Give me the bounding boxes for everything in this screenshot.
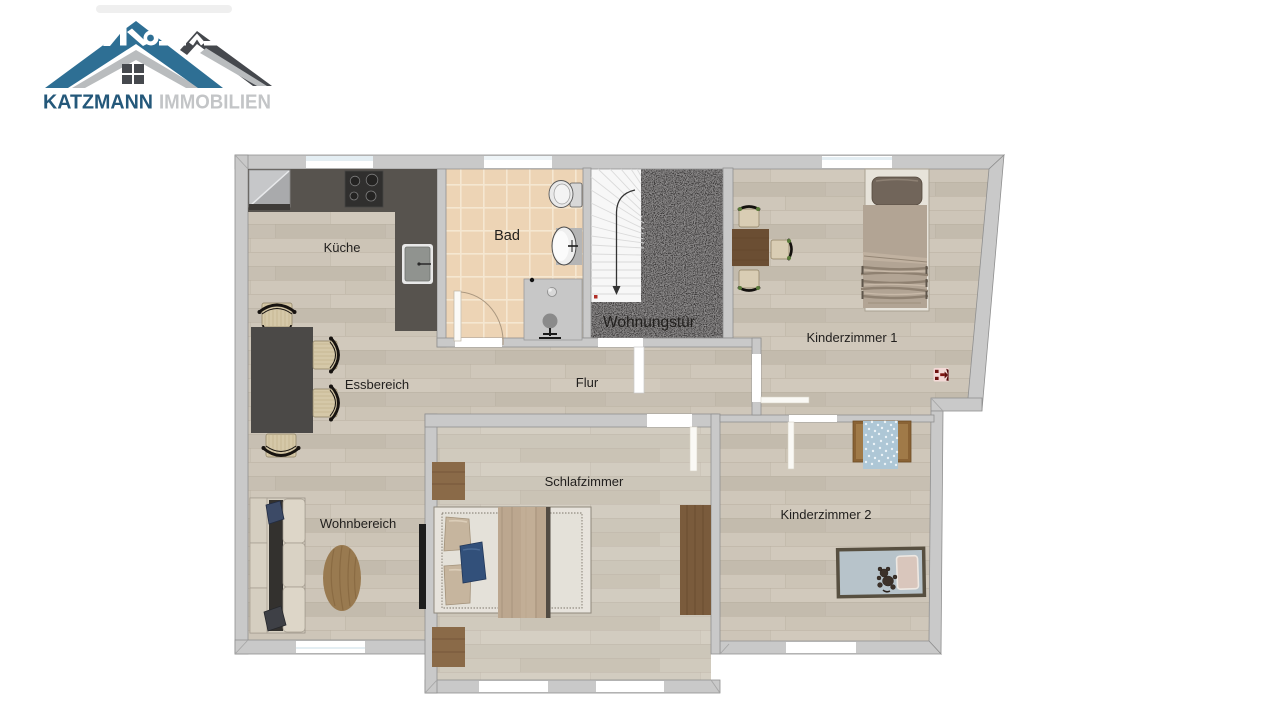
svg-text:Kinderzimmer 2: Kinderzimmer 2	[780, 507, 871, 522]
svg-text:Wohnbereich: Wohnbereich	[320, 516, 396, 531]
svg-text:Flur: Flur	[576, 375, 599, 390]
svg-text:Bad: Bad	[494, 228, 520, 244]
svg-text:Essbereich: Essbereich	[345, 377, 409, 392]
svg-text:Kinderzimmer 1: Kinderzimmer 1	[806, 330, 897, 345]
svg-text:IMMOBILIEN: IMMOBILIEN	[159, 92, 271, 114]
svg-text:Schlafzimmer: Schlafzimmer	[545, 474, 624, 489]
svg-text:KATZMANN: KATZMANN	[43, 92, 153, 114]
svg-text:Wohnungstür: Wohnungstür	[603, 314, 695, 331]
svg-text:Küche: Küche	[324, 240, 361, 255]
